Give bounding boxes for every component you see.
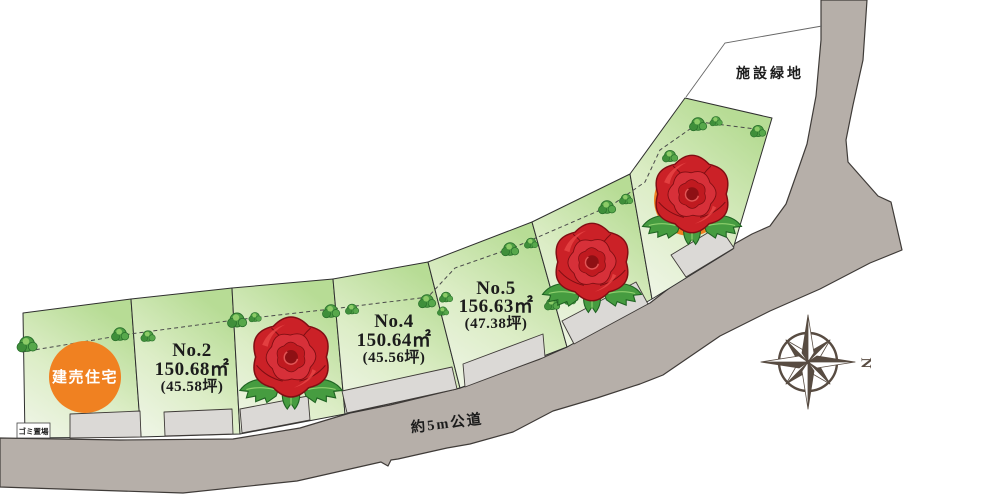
green-space-label: 施設緑地 [736,65,804,82]
lot-no2-area: 150.68㎡ [155,357,230,380]
lot-no5-area: 156.63㎡ [459,294,534,317]
built-house-label: 建売住宅 [52,368,118,386]
garbage-area-label: ゴミ置場 [17,423,50,438]
parking-space [164,409,233,436]
site-plan-svg: 建売住宅 No.2 150.68㎡ (45.58坪) No.4 150.64㎡ … [0,0,1000,498]
compass-rose-icon: N [761,315,874,409]
green-space-boundary-line [686,26,822,97]
lot-no2-number: No.2 [172,340,211,361]
lot-no5-tsubo: (47.38坪) [465,315,528,332]
lot-no4-area: 150.64㎡ [357,328,432,351]
svg-text:ゴミ置場: ゴミ置場 [19,426,49,436]
lot-no4-number: No.4 [374,311,413,332]
site-plan-map: 建売住宅 No.2 150.68㎡ (45.58坪) No.4 150.64㎡ … [0,0,1000,498]
lot-no2-tsubo: (45.58坪) [161,378,224,395]
lot-no4-tsubo: (45.56坪) [363,349,426,366]
parking-space [70,411,141,438]
compass-north-label: N [858,358,874,369]
